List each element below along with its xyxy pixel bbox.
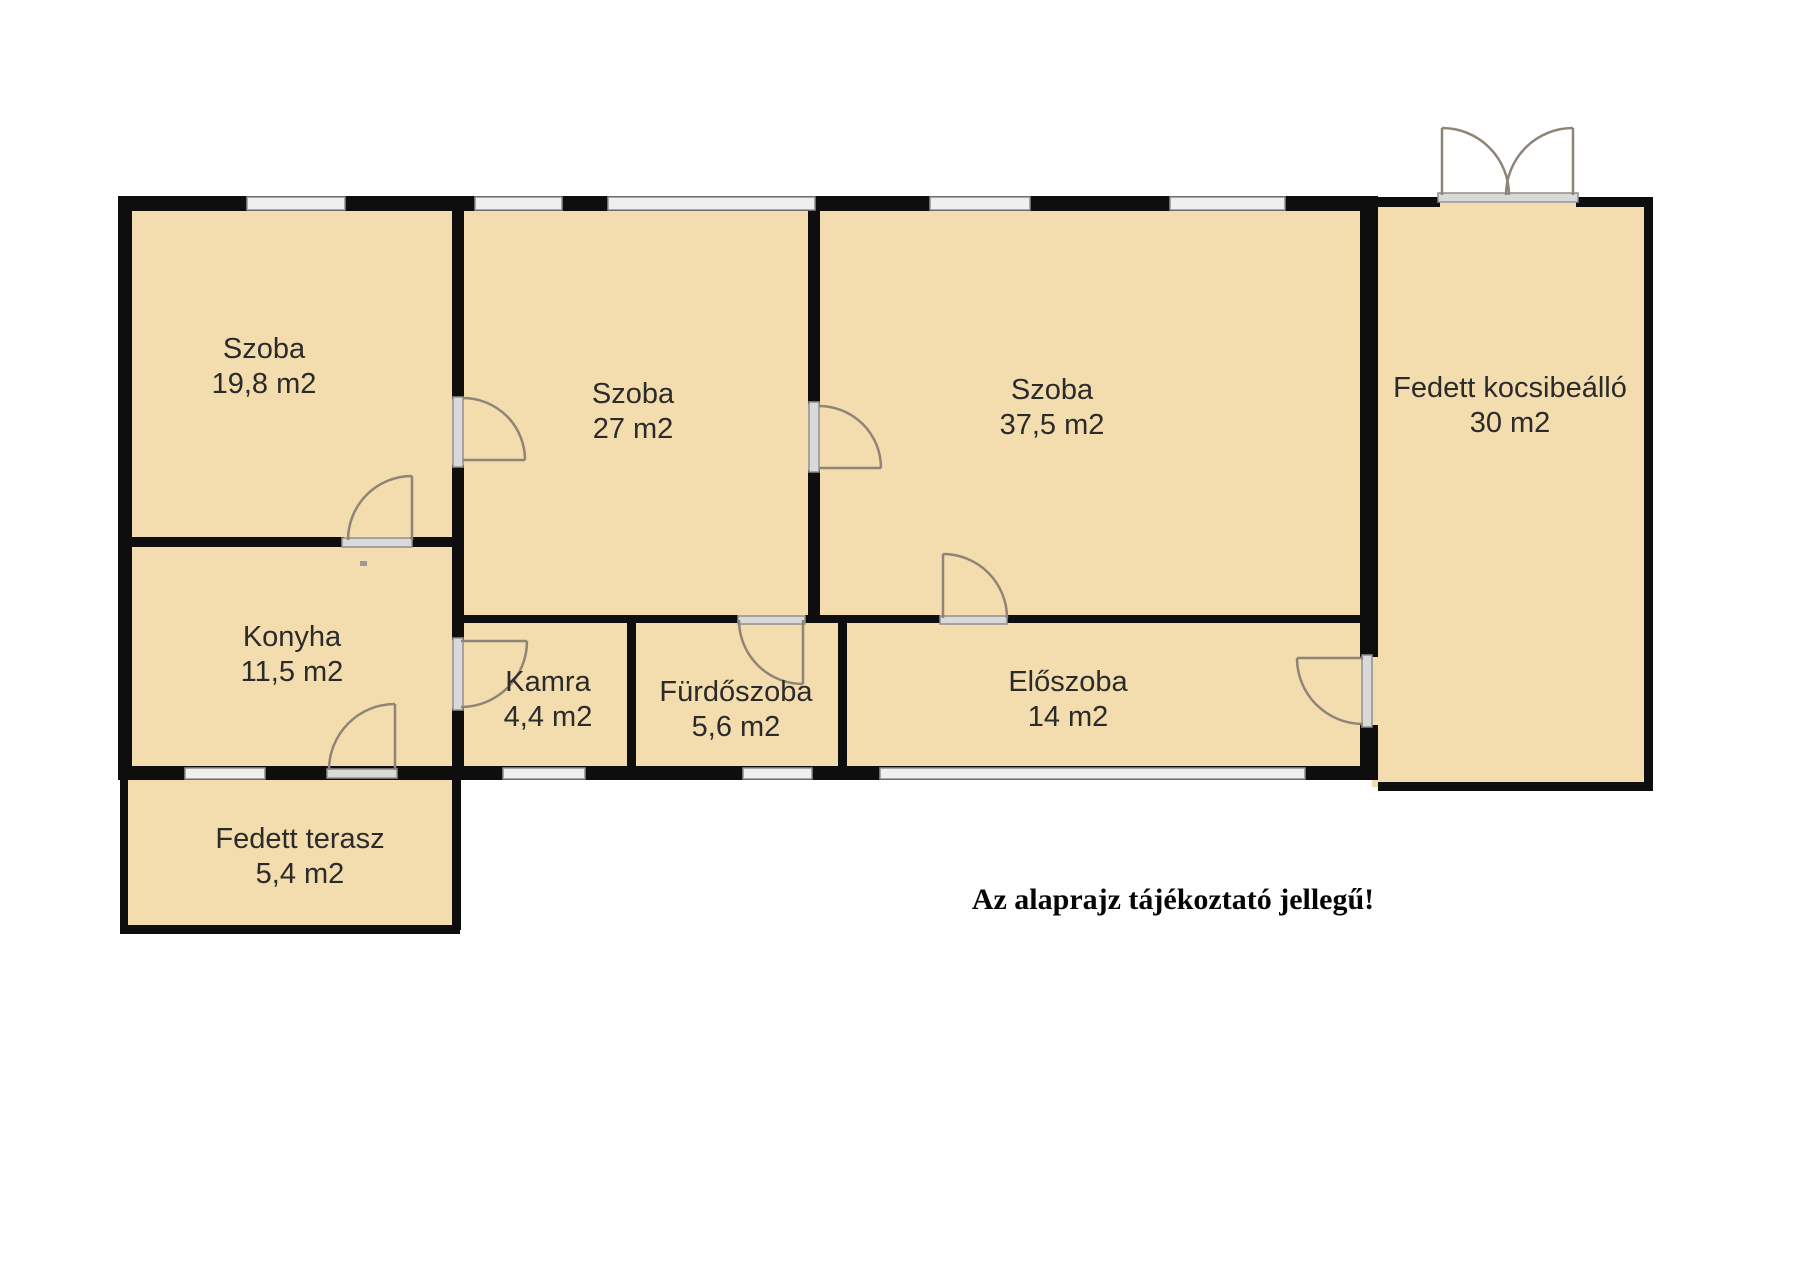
door-frame-szoba27-szoba375: [809, 402, 819, 472]
window-kamra-bottom: [503, 768, 585, 779]
wall-middle-horizontal-1: [457, 615, 738, 623]
room-label-furdoszoba: Fürdőszoba 5,6 m2: [659, 675, 812, 745]
room-label-szoba-19-8: Szoba 19,8 m2: [212, 332, 317, 402]
room-label-konyha: Konyha 11,5 m2: [241, 620, 344, 690]
wall-szoba198-konyha-right: [410, 537, 452, 547]
exterior-right-wall-lower: [1360, 725, 1378, 780]
room-area: 4,4 m2: [504, 700, 593, 735]
window-szoba375-top-2: [1170, 197, 1285, 210]
carport-top-wall-right: [1576, 197, 1653, 207]
carport-floor: [1372, 203, 1650, 787]
door-frame-eloszoba-kocsibeallo: [1362, 655, 1372, 727]
window-szoba27-top-1: [475, 197, 562, 210]
room-name: Szoba: [1000, 373, 1105, 408]
carport-right-wall: [1644, 197, 1653, 791]
room-name: Szoba: [212, 332, 317, 367]
window-eloszoba-bottom: [880, 768, 1305, 779]
terrace-right-wall: [452, 780, 461, 930]
door-frame-konyha-terasz: [327, 769, 397, 778]
room-label-fedett-kocsibeallo: Fedett kocsibeálló 30 m2: [1393, 371, 1627, 441]
wall-konyha-kamra-upper: [452, 465, 464, 640]
window-szoba375-top-1: [930, 197, 1030, 210]
door-frame-szoba198-szoba27: [453, 397, 463, 467]
terrace-bottom-wall: [120, 925, 460, 934]
window-konyha-bottom: [185, 768, 265, 779]
window-szoba198-top: [247, 197, 345, 210]
wall-middle-horizontal-3: [1007, 615, 1360, 623]
room-label-fedett-terasz: Fedett terasz 5,4 m2: [215, 822, 384, 892]
wall-middle-horizontal-2: [805, 615, 940, 623]
door-frame-konyha-kamra: [453, 638, 463, 710]
room-label-szoba-37-5: Szoba 37,5 m2: [1000, 373, 1105, 443]
room-area: 30 m2: [1393, 406, 1627, 441]
carport-bottom-wall: [1378, 782, 1653, 791]
wall-szoba27-szoba375-upper: [808, 207, 820, 404]
exterior-left-wall: [118, 196, 132, 780]
exterior-right-wall-upper: [1360, 196, 1378, 657]
wall-szoba198-konyha-left: [125, 537, 344, 547]
room-label-eloszoba: Előszoba 14 m2: [1008, 665, 1127, 735]
window-szoba27-top-2: [608, 197, 815, 210]
door-frame-szoba198-konyha: [342, 538, 412, 547]
room-area: 37,5 m2: [1000, 408, 1105, 443]
floor-plan: Szoba 19,8 m2 Szoba 27 m2 Szoba 37,5 m2 …: [0, 0, 1809, 1280]
door-swing-carport-right-leaf: [1506, 128, 1573, 195]
room-area: 19,8 m2: [212, 367, 317, 402]
door-swing-carport-left-leaf: [1442, 128, 1509, 195]
room-name: Szoba: [592, 377, 674, 412]
room-label-szoba-27: Szoba 27 m2: [592, 377, 674, 447]
room-name: Előszoba: [1008, 665, 1127, 700]
disclaimer-text: Az alaprajz tájékoztató jellegű!: [972, 883, 1374, 917]
room-area: 27 m2: [592, 412, 674, 447]
wall-szoba198-szoba27-upper: [452, 207, 464, 399]
room-area: 14 m2: [1008, 700, 1127, 735]
room-name: Fedett terasz: [215, 822, 384, 857]
wall-furdoszoba-eloszoba: [838, 621, 847, 768]
room-name: Fedett kocsibeálló: [1393, 371, 1627, 406]
room-name: Kamra: [504, 665, 593, 700]
room-name: Konyha: [241, 620, 344, 655]
terrace-left-wall: [120, 780, 128, 930]
door-frame-szoba27-furdoszoba: [738, 616, 805, 624]
wall-szoba27-szoba375-lower: [808, 470, 820, 617]
window-furdoszoba-bottom: [743, 768, 812, 779]
door-frame-szoba375-eloszoba: [940, 616, 1007, 624]
wall-kamra-furdoszoba: [627, 621, 636, 768]
room-name: Fürdőszoba: [659, 675, 812, 710]
wall-konyha-kamra-lower: [452, 708, 464, 768]
carport-top-wall-left: [1378, 197, 1440, 207]
room-area: 11,5 m2: [241, 655, 344, 690]
smudge-artifact: [360, 561, 367, 566]
room-area: 5,4 m2: [215, 857, 384, 892]
room-area: 5,6 m2: [659, 710, 812, 745]
room-label-kamra: Kamra 4,4 m2: [504, 665, 593, 735]
